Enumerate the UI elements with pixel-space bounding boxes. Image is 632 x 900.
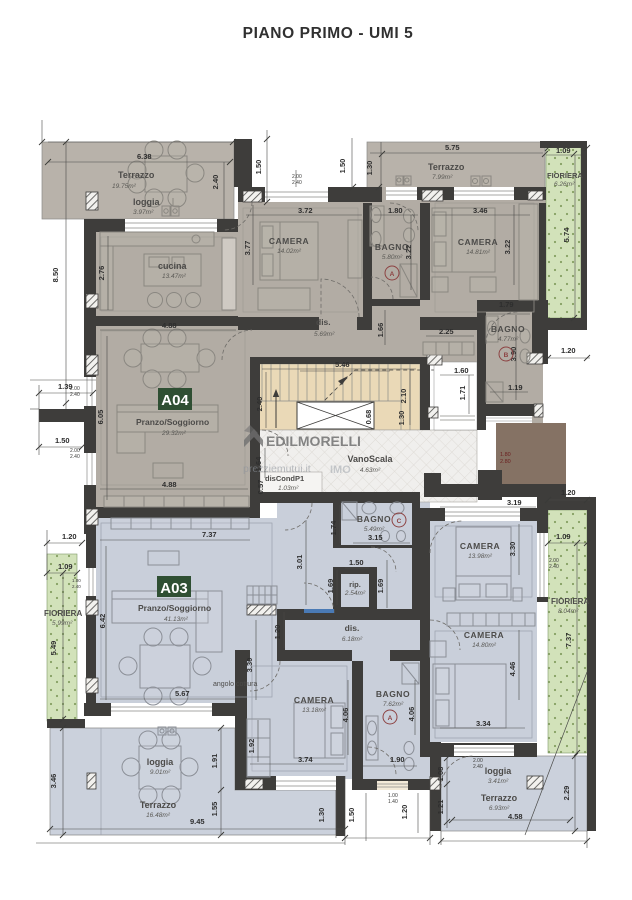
svg-text:2.40: 2.40 (70, 454, 80, 460)
svg-text:1.20: 1.20 (62, 532, 77, 541)
svg-text:19.75m²: 19.75m² (112, 183, 137, 190)
svg-text:4.88: 4.88 (162, 321, 177, 330)
svg-text:5.75: 5.75 (445, 143, 460, 152)
svg-text:Terrazzo: Terrazzo (481, 793, 518, 803)
svg-text:3.22: 3.22 (503, 240, 512, 255)
svg-text:rip.: rip. (349, 580, 361, 589)
svg-text:loggia: loggia (485, 766, 512, 776)
svg-text:FIORIERA: FIORIERA (547, 171, 583, 180)
svg-text:4.58: 4.58 (508, 812, 523, 821)
svg-text:1.66: 1.66 (376, 323, 385, 338)
svg-text:6.93m²: 6.93m² (489, 805, 510, 812)
svg-text:2.76: 2.76 (97, 266, 106, 281)
svg-text:CAMERA: CAMERA (294, 695, 334, 705)
svg-text:3.97m²: 3.97m² (133, 209, 154, 216)
svg-text:5.49: 5.49 (49, 641, 58, 656)
svg-text:4.63m²: 4.63m² (360, 467, 381, 474)
svg-text:CAMERA: CAMERA (458, 237, 498, 247)
svg-text:2.40: 2.40 (70, 392, 80, 398)
svg-text:3.01: 3.01 (295, 555, 304, 570)
svg-text:1.09: 1.09 (58, 562, 73, 571)
svg-text:4.06: 4.06 (341, 708, 350, 723)
svg-text:0.57: 0.57 (256, 480, 265, 495)
svg-text:1.60: 1.60 (454, 366, 469, 375)
svg-text:2.40: 2.40 (255, 397, 264, 412)
svg-text:1.64: 1.64 (254, 456, 263, 471)
svg-text:5.80m²: 5.80m² (382, 254, 403, 261)
svg-text:1.30: 1.30 (365, 161, 374, 176)
svg-text:1.69: 1.69 (326, 579, 335, 594)
svg-text:Terrazzo: Terrazzo (140, 800, 177, 810)
svg-text:6.26m²: 6.26m² (554, 181, 575, 188)
svg-text:13.98m²: 13.98m² (468, 553, 493, 560)
svg-text:disCondP1: disCondP1 (265, 474, 304, 483)
svg-text:2.10: 2.10 (399, 389, 408, 404)
svg-text:A03: A03 (160, 580, 188, 597)
svg-text:1.30: 1.30 (317, 808, 326, 823)
svg-text:13.47m²: 13.47m² (162, 273, 187, 280)
svg-text:1.21: 1.21 (436, 800, 445, 815)
svg-text:1.69: 1.69 (376, 579, 385, 594)
svg-text:EDILMORELLI: EDILMORELLI (266, 433, 361, 449)
svg-text:VanoScala: VanoScala (347, 454, 393, 464)
svg-text:3.41m²: 3.41m² (488, 778, 509, 785)
svg-text:1.50: 1.50 (347, 808, 356, 823)
svg-text:1.91: 1.91 (210, 754, 219, 769)
svg-text:PIANO PRIMO - UMI 5: PIANO PRIMO - UMI 5 (243, 25, 414, 42)
svg-text:CAMERA: CAMERA (460, 541, 500, 551)
svg-text:3.30: 3.30 (508, 542, 517, 557)
svg-text:8.50: 8.50 (51, 268, 60, 283)
svg-text:1.90: 1.90 (390, 755, 405, 764)
svg-text:1.30: 1.30 (397, 411, 406, 426)
svg-text:1.08: 1.08 (436, 767, 445, 782)
svg-text:6.18m²: 6.18m² (342, 636, 363, 643)
svg-text:2.54m²: 2.54m² (344, 590, 366, 597)
svg-text:1.50: 1.50 (55, 436, 70, 445)
svg-text:Pranzo/Soggiorno: Pranzo/Soggiorno (136, 417, 209, 427)
svg-text:3.15: 3.15 (368, 533, 383, 542)
svg-text:BAGNO: BAGNO (376, 689, 410, 699)
svg-text:1.03m²: 1.03m² (278, 485, 299, 492)
svg-text:13.18m²: 13.18m² (302, 707, 327, 714)
svg-text:6.42: 6.42 (98, 614, 107, 629)
svg-text:cucina: cucina (158, 261, 188, 271)
svg-text:3.34: 3.34 (476, 719, 491, 728)
svg-text:Terrazzo: Terrazzo (118, 170, 155, 180)
svg-text:1.00: 1.00 (72, 578, 81, 583)
svg-text:3.72: 3.72 (298, 206, 313, 215)
svg-text:3.77: 3.77 (243, 241, 252, 256)
svg-text:angolo cottura: angolo cottura (213, 681, 257, 688)
svg-text:3.46: 3.46 (473, 206, 488, 215)
svg-text:1.50: 1.50 (338, 159, 347, 174)
svg-text:FIORIERA: FIORIERA (551, 597, 589, 606)
svg-text:C: C (397, 518, 402, 525)
svg-text:5.69m²: 5.69m² (314, 331, 335, 338)
svg-text:1.19: 1.19 (508, 383, 523, 392)
svg-text:9.01m²: 9.01m² (150, 769, 171, 776)
svg-text:8.04m²: 8.04m² (558, 608, 579, 615)
svg-text:Terrazzo: Terrazzo (428, 162, 465, 172)
svg-text:2.80: 2.80 (500, 459, 511, 465)
svg-text:CAMERA: CAMERA (269, 236, 309, 246)
svg-text:1.50: 1.50 (349, 558, 364, 567)
svg-text:14.80m²: 14.80m² (472, 642, 497, 649)
svg-text:loggia: loggia (147, 757, 174, 767)
svg-text:7.62m²: 7.62m² (383, 701, 404, 708)
svg-text:3.19: 3.19 (507, 498, 522, 507)
svg-text:1.20: 1.20 (561, 488, 576, 497)
svg-text:14.02m²: 14.02m² (277, 248, 302, 255)
svg-text:2.40: 2.40 (473, 764, 483, 770)
svg-text:1.71: 1.71 (458, 386, 467, 401)
svg-text:41.13m²: 41.13m² (164, 616, 189, 623)
svg-text:5.74: 5.74 (562, 227, 571, 242)
svg-text:2.40: 2.40 (211, 175, 220, 190)
svg-text:1.80: 1.80 (500, 452, 511, 458)
svg-text:3.30: 3.30 (245, 658, 254, 673)
svg-text:dis.: dis. (316, 317, 331, 327)
svg-text:1.40: 1.40 (388, 799, 398, 805)
svg-text:16.48m²: 16.48m² (146, 812, 171, 819)
svg-text:7.37: 7.37 (202, 530, 217, 539)
svg-text:1.79: 1.79 (499, 300, 514, 309)
svg-text:B: B (504, 352, 509, 359)
svg-text:3.22: 3.22 (404, 245, 413, 260)
svg-text:1.92: 1.92 (247, 739, 256, 754)
svg-text:9.45: 9.45 (190, 817, 205, 826)
svg-text:7.99m²: 7.99m² (432, 174, 453, 181)
svg-text:2.40: 2.40 (292, 180, 302, 186)
svg-text:1.20: 1.20 (273, 625, 282, 640)
svg-text:IMO: IMO (330, 464, 351, 476)
svg-text:1.09: 1.09 (556, 532, 571, 541)
svg-text:5.49m²: 5.49m² (364, 526, 385, 533)
svg-text:4.46: 4.46 (508, 662, 517, 677)
svg-text:2.25: 2.25 (439, 327, 454, 336)
svg-text:1.80: 1.80 (388, 206, 403, 215)
svg-text:6.38: 6.38 (137, 152, 152, 161)
svg-text:14.81m²: 14.81m² (466, 249, 491, 256)
svg-text:Pranzo/Soggiorno: Pranzo/Soggiorno (138, 603, 211, 613)
svg-text:1.20: 1.20 (561, 346, 576, 355)
svg-text:A: A (388, 715, 393, 722)
svg-text:2.29: 2.29 (562, 786, 571, 801)
svg-text:7.37: 7.37 (564, 633, 573, 648)
svg-text:5.67: 5.67 (175, 689, 190, 698)
svg-text:1.09: 1.09 (556, 146, 571, 155)
svg-text:1.20: 1.20 (400, 805, 409, 820)
svg-text:2.40: 2.40 (549, 564, 559, 570)
svg-text:4.88: 4.88 (162, 480, 177, 489)
svg-text:2.40: 2.40 (72, 584, 81, 589)
svg-text:CAMERA: CAMERA (464, 630, 504, 640)
svg-text:1.55: 1.55 (210, 802, 219, 817)
svg-text:5.46: 5.46 (335, 360, 350, 369)
svg-text:loggia: loggia (133, 197, 160, 207)
svg-text:dis.: dis. (345, 623, 360, 633)
svg-text:29.32m²: 29.32m² (161, 430, 187, 437)
svg-text:4.06: 4.06 (407, 707, 416, 722)
svg-text:3.46: 3.46 (49, 774, 58, 789)
svg-text:1.74: 1.74 (329, 520, 338, 535)
svg-text:3.74: 3.74 (298, 755, 313, 764)
svg-text:1.50: 1.50 (254, 160, 263, 175)
svg-text:BAGNO: BAGNO (357, 514, 391, 524)
svg-text:BAGNO: BAGNO (491, 324, 525, 334)
svg-text:0.68: 0.68 (364, 410, 373, 425)
svg-text:A: A (390, 271, 395, 278)
svg-text:5.99m²: 5.99m² (52, 620, 73, 627)
svg-text:6.05: 6.05 (96, 410, 105, 425)
svg-text:A04: A04 (161, 392, 189, 409)
